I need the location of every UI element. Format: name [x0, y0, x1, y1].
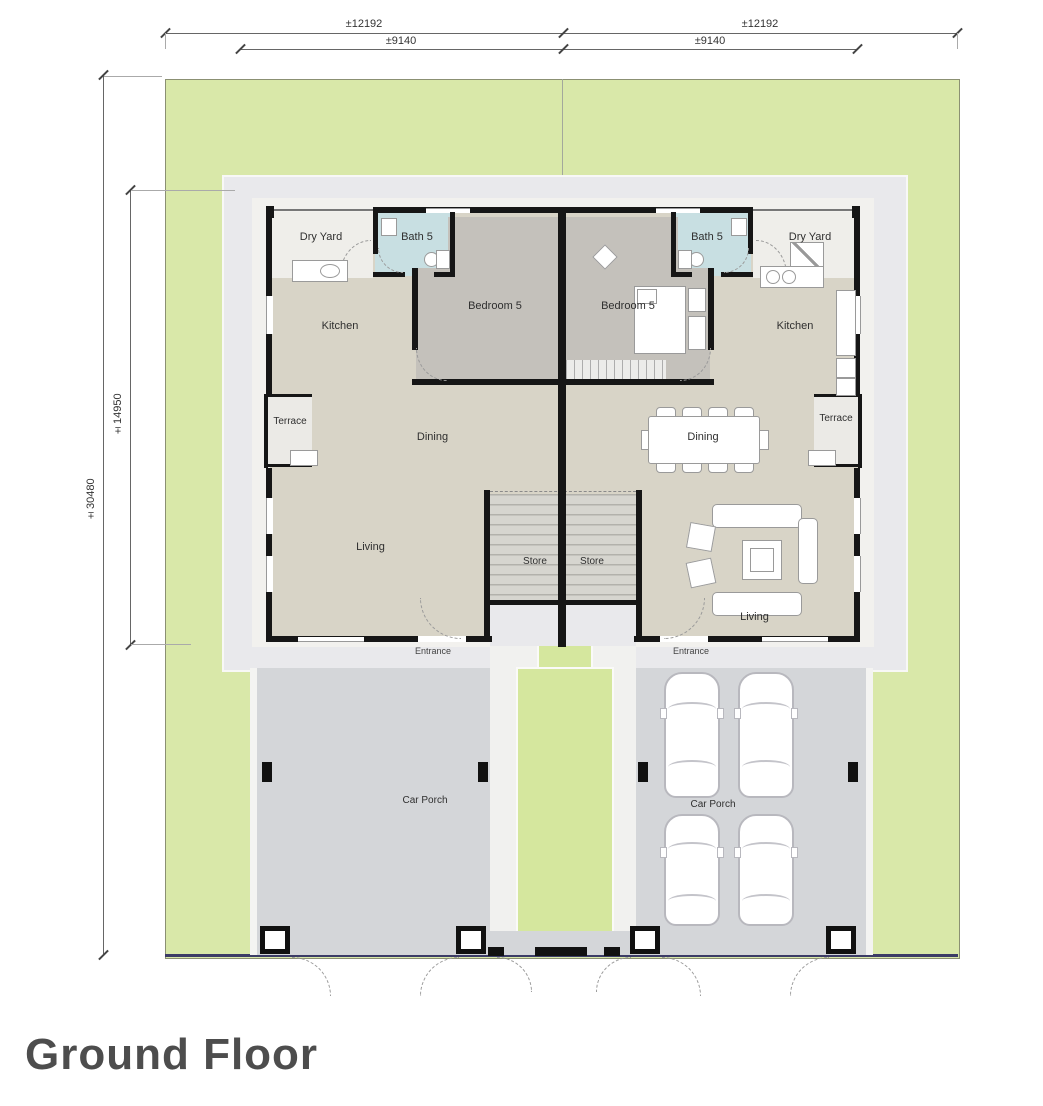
kitchen-bedroom-wall-left [412, 268, 418, 350]
car-windshield [742, 702, 790, 716]
wall-right-lower [854, 468, 860, 642]
nightstand [688, 288, 706, 312]
bedroom-right-floor [564, 217, 678, 269]
car-mirror [734, 847, 741, 858]
room-label-kitchen-right: Kitchen [750, 320, 840, 332]
bedroom-left-floor [448, 217, 562, 269]
car-rear-window [668, 894, 716, 908]
dim-extension [131, 644, 191, 645]
gate-swing-arc [596, 957, 631, 992]
party-wall [558, 207, 566, 647]
car-body [738, 672, 794, 798]
room-label-entrance-right: Entrance [656, 646, 726, 656]
dry-yard-right-sink [782, 270, 796, 284]
dim-line-side-outer [103, 75, 104, 955]
porch-pillar [848, 762, 858, 782]
window-top-right [656, 208, 700, 213]
kitchen-appliance [836, 358, 856, 378]
gate-swing-arc [790, 957, 829, 996]
room-label-dining-right: Dining [660, 431, 746, 443]
porch-pillar [478, 762, 488, 782]
dim-side-inner: ±14950 [112, 370, 124, 460]
bedroom-right-bottom-wall [564, 379, 714, 385]
dry-yard-screen-left [270, 209, 374, 211]
car [660, 672, 724, 798]
dim-extension [165, 33, 166, 49]
car-rear-window [668, 760, 716, 774]
car-mirror [717, 847, 724, 858]
room-label-car-porch-right: Car Porch [673, 799, 753, 810]
room-label-store-right: Store [562, 556, 622, 567]
car-body [738, 814, 794, 926]
dim-top-inner-left: ±9140 [361, 35, 441, 47]
room-label-bath-left: Bath 5 [382, 231, 452, 243]
car-rear-window [742, 760, 790, 774]
gate-swing-arc [497, 957, 532, 992]
terrace-left-wall [264, 394, 268, 468]
window-right [854, 498, 861, 534]
window-bottom-left [298, 637, 364, 642]
room-label-living-left: Living [328, 541, 413, 553]
dim-line-top-inner [240, 49, 858, 50]
car-mirror [660, 708, 667, 719]
gate-pillar [826, 926, 856, 954]
floor-plan: ±12192 ±12192 ±9140 ±9140 ±30480 ±14950 [0, 0, 1043, 1106]
gate-swing-arc [662, 957, 701, 996]
bath-right-wall [671, 272, 692, 277]
stairs-left [488, 494, 562, 601]
terrace-left-wall [264, 394, 312, 397]
armchair [686, 522, 716, 552]
stair-hatch-right [566, 360, 666, 381]
dim-extension [957, 33, 958, 49]
porch-strip-left [250, 668, 257, 955]
gate-bar [604, 947, 620, 956]
gate-swing-arc [292, 957, 331, 996]
car [734, 814, 798, 926]
kitchen-appliance [836, 378, 856, 396]
porch-pillar [638, 762, 648, 782]
terrace-step-right [808, 450, 836, 466]
gate-pillar [260, 926, 290, 954]
window-left [266, 556, 273, 592]
dim-top-outer-left: ±12192 [324, 18, 404, 30]
terrace-right-wall [858, 394, 862, 468]
gate-swing-arc [420, 957, 459, 996]
car-mirror [660, 847, 667, 858]
armchair [686, 558, 717, 589]
car-mirror [734, 708, 741, 719]
window-bottom-right [762, 637, 828, 642]
wall-left-lower [266, 468, 272, 642]
page-title: Ground Floor [25, 1030, 318, 1080]
dim-extension [131, 190, 235, 191]
store-right-bottom [560, 600, 642, 605]
stair-open-line [490, 491, 562, 492]
coffee-table-inner [750, 548, 774, 572]
car-mirror [791, 708, 798, 719]
car-windshield [668, 702, 716, 716]
car-rear-window [742, 894, 790, 908]
gate-bar [535, 947, 587, 956]
dim-top-inner-right: ±9140 [670, 35, 750, 47]
room-label-living-right: Living [712, 611, 797, 623]
dry-yard-left-sink [320, 264, 340, 278]
store-left-wall [484, 490, 490, 642]
gate-pillar [630, 926, 660, 954]
dim-extension [104, 76, 162, 77]
bath-left-wall [434, 272, 455, 277]
car-body [664, 672, 720, 798]
sofa [712, 504, 802, 528]
bedroom-left-bottom-wall [412, 379, 562, 385]
stair-open-line [564, 491, 636, 492]
gate-pillar [456, 926, 486, 954]
store-right-wall [636, 490, 642, 642]
dry-yard-right-sink [766, 270, 780, 284]
bath-left-wc [436, 250, 450, 269]
dry-yard-screen-right [753, 209, 857, 211]
car-porch-left-floor [257, 668, 490, 955]
room-label-dry-yard-left: Dry Yard [276, 231, 366, 243]
bath-right-wc [678, 250, 692, 269]
room-label-entrance-left: Entrance [398, 646, 468, 656]
room-label-dining-left: Dining [390, 431, 475, 443]
car-windshield [668, 842, 716, 856]
window-left [266, 296, 273, 334]
car-body [664, 814, 720, 926]
store-left-bottom [484, 600, 566, 605]
dim-line-side-inner [130, 190, 131, 645]
room-label-dry-yard-right: Dry Yard [765, 231, 855, 243]
car [660, 814, 724, 926]
stairs-right [564, 494, 638, 601]
kitchen-bedroom-wall-right [708, 268, 714, 350]
window-left [266, 498, 273, 534]
dresser [688, 316, 706, 350]
room-label-bedroom-right: Bedroom 5 [573, 300, 683, 312]
room-label-bath-right: Bath 5 [672, 231, 742, 243]
window-right [854, 556, 861, 592]
green-strip [516, 667, 614, 933]
car-windshield [742, 842, 790, 856]
window-top-left [426, 208, 470, 213]
room-label-kitchen-left: Kitchen [295, 320, 385, 332]
room-label-bedroom-left: Bedroom 5 [440, 300, 550, 312]
car-mirror [717, 708, 724, 719]
car [734, 672, 798, 798]
room-label-terrace-right: Terrace [812, 413, 860, 424]
porch-strip-right [866, 668, 873, 955]
dim-side-outer: ±30480 [85, 455, 97, 545]
sofa [798, 518, 818, 584]
room-label-store-left: Store [505, 556, 565, 567]
porch-pillar [262, 762, 272, 782]
terrace-step-left [290, 450, 318, 466]
gate-bar [488, 947, 504, 956]
dim-top-outer-right: ±12192 [720, 18, 800, 30]
room-label-car-porch-left: Car Porch [385, 795, 465, 806]
car-mirror [791, 847, 798, 858]
room-label-terrace-left: Terrace [266, 416, 314, 427]
